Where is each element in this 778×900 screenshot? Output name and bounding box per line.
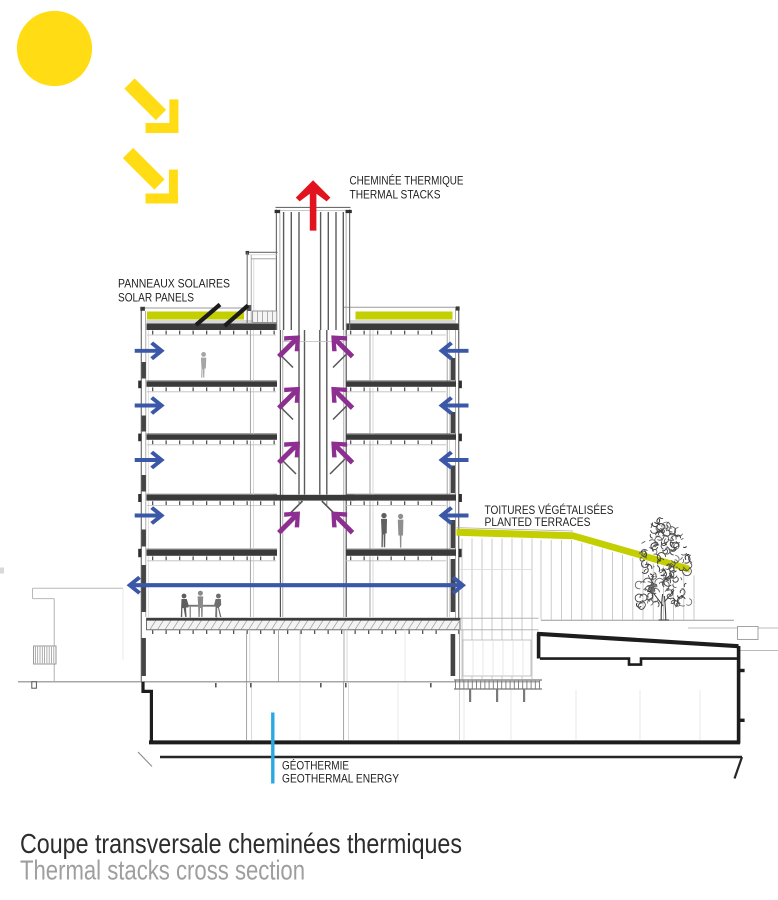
svg-text:Thermal stacks cross section: Thermal stacks cross section <box>20 855 305 886</box>
svg-text:GEOTHERMAL ENERGY: GEOTHERMAL ENERGY <box>282 772 399 786</box>
svg-text:PANNEAUX SOLAIRES: PANNEAUX SOLAIRES <box>118 277 230 291</box>
svg-text:GÉOTHERMIE: GÉOTHERMIE <box>282 759 349 773</box>
svg-text:CHEMINÉE THERMIQUE: CHEMINÉE THERMIQUE <box>350 174 464 188</box>
svg-text:THERMAL STACKS: THERMAL STACKS <box>350 188 441 202</box>
svg-text:PLANTED TERRACES: PLANTED TERRACES <box>485 515 591 529</box>
svg-text:SOLAR PANELS: SOLAR PANELS <box>118 291 194 305</box>
